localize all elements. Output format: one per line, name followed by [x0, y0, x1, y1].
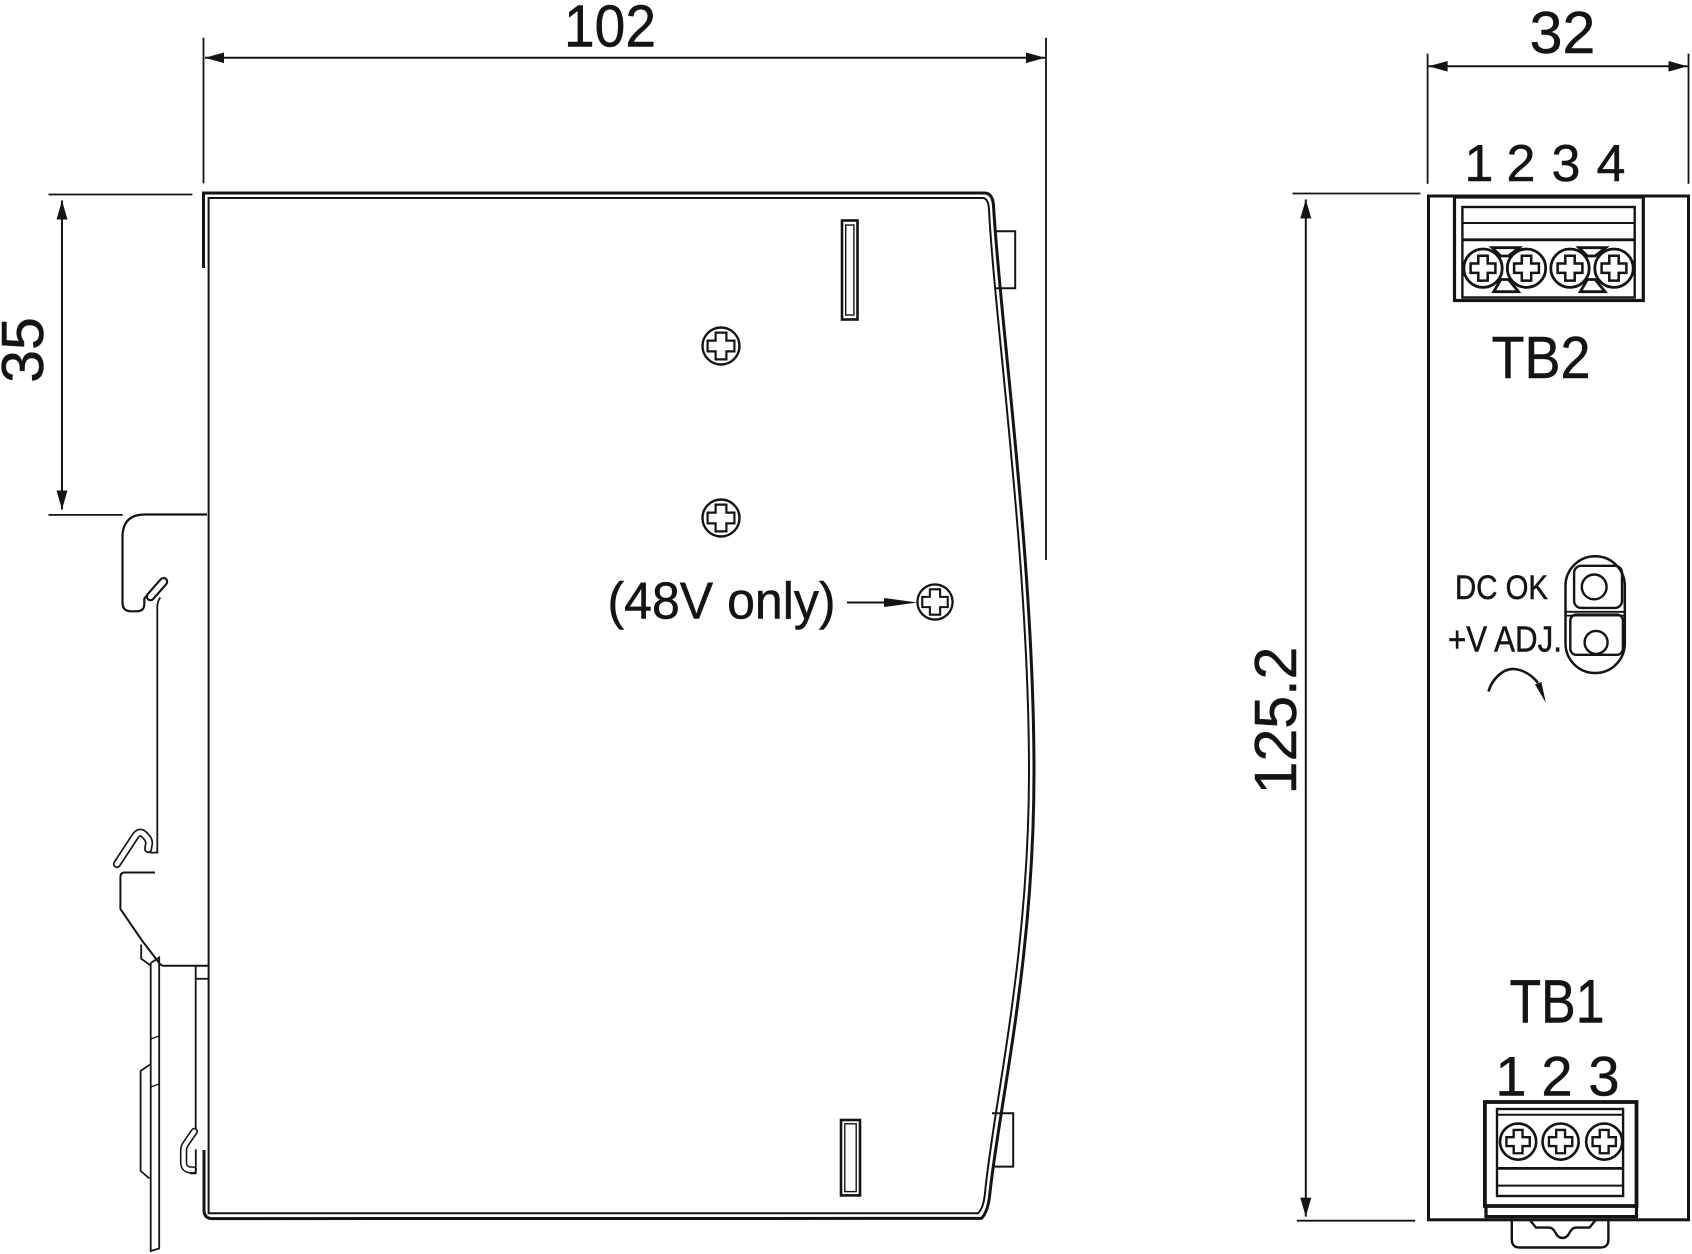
- svg-text:2: 2: [1541, 1045, 1572, 1108]
- svg-text:DC OK: DC OK: [1455, 569, 1548, 607]
- svg-text:3: 3: [1588, 1045, 1619, 1108]
- svg-text:3: 3: [1552, 135, 1581, 193]
- svg-text:TB2: TB2: [1492, 325, 1591, 391]
- svg-text:4: 4: [1597, 135, 1626, 193]
- svg-text:(48V only): (48V only): [608, 573, 836, 631]
- svg-text:1: 1: [1465, 135, 1494, 193]
- svg-text:102: 102: [564, 0, 656, 60]
- svg-text:35: 35: [0, 317, 56, 383]
- svg-text:125.2: 125.2: [1243, 647, 1309, 795]
- svg-text:+V ADJ.: +V ADJ.: [1448, 619, 1562, 660]
- svg-text:TB1: TB1: [1510, 968, 1605, 1036]
- svg-text:32: 32: [1530, 0, 1596, 66]
- svg-text:1: 1: [1495, 1045, 1526, 1108]
- svg-text:2: 2: [1507, 135, 1536, 193]
